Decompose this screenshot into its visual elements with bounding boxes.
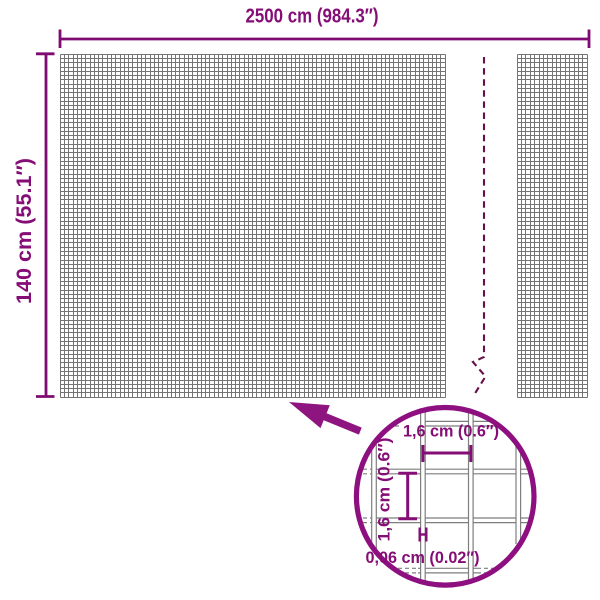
svg-text:2500 cm (984.3″): 2500 cm (984.3″) bbox=[246, 6, 379, 28]
svg-text:140 cm (55.1″): 140 cm (55.1″) bbox=[13, 158, 36, 304]
svg-text:1,6 cm (0.6″): 1,6 cm (0.6″) bbox=[375, 438, 394, 542]
svg-text:0,06 cm (0.02″): 0,06 cm (0.02″) bbox=[366, 548, 480, 567]
svg-text:1,6 cm (0.6″): 1,6 cm (0.6″) bbox=[403, 422, 499, 441]
